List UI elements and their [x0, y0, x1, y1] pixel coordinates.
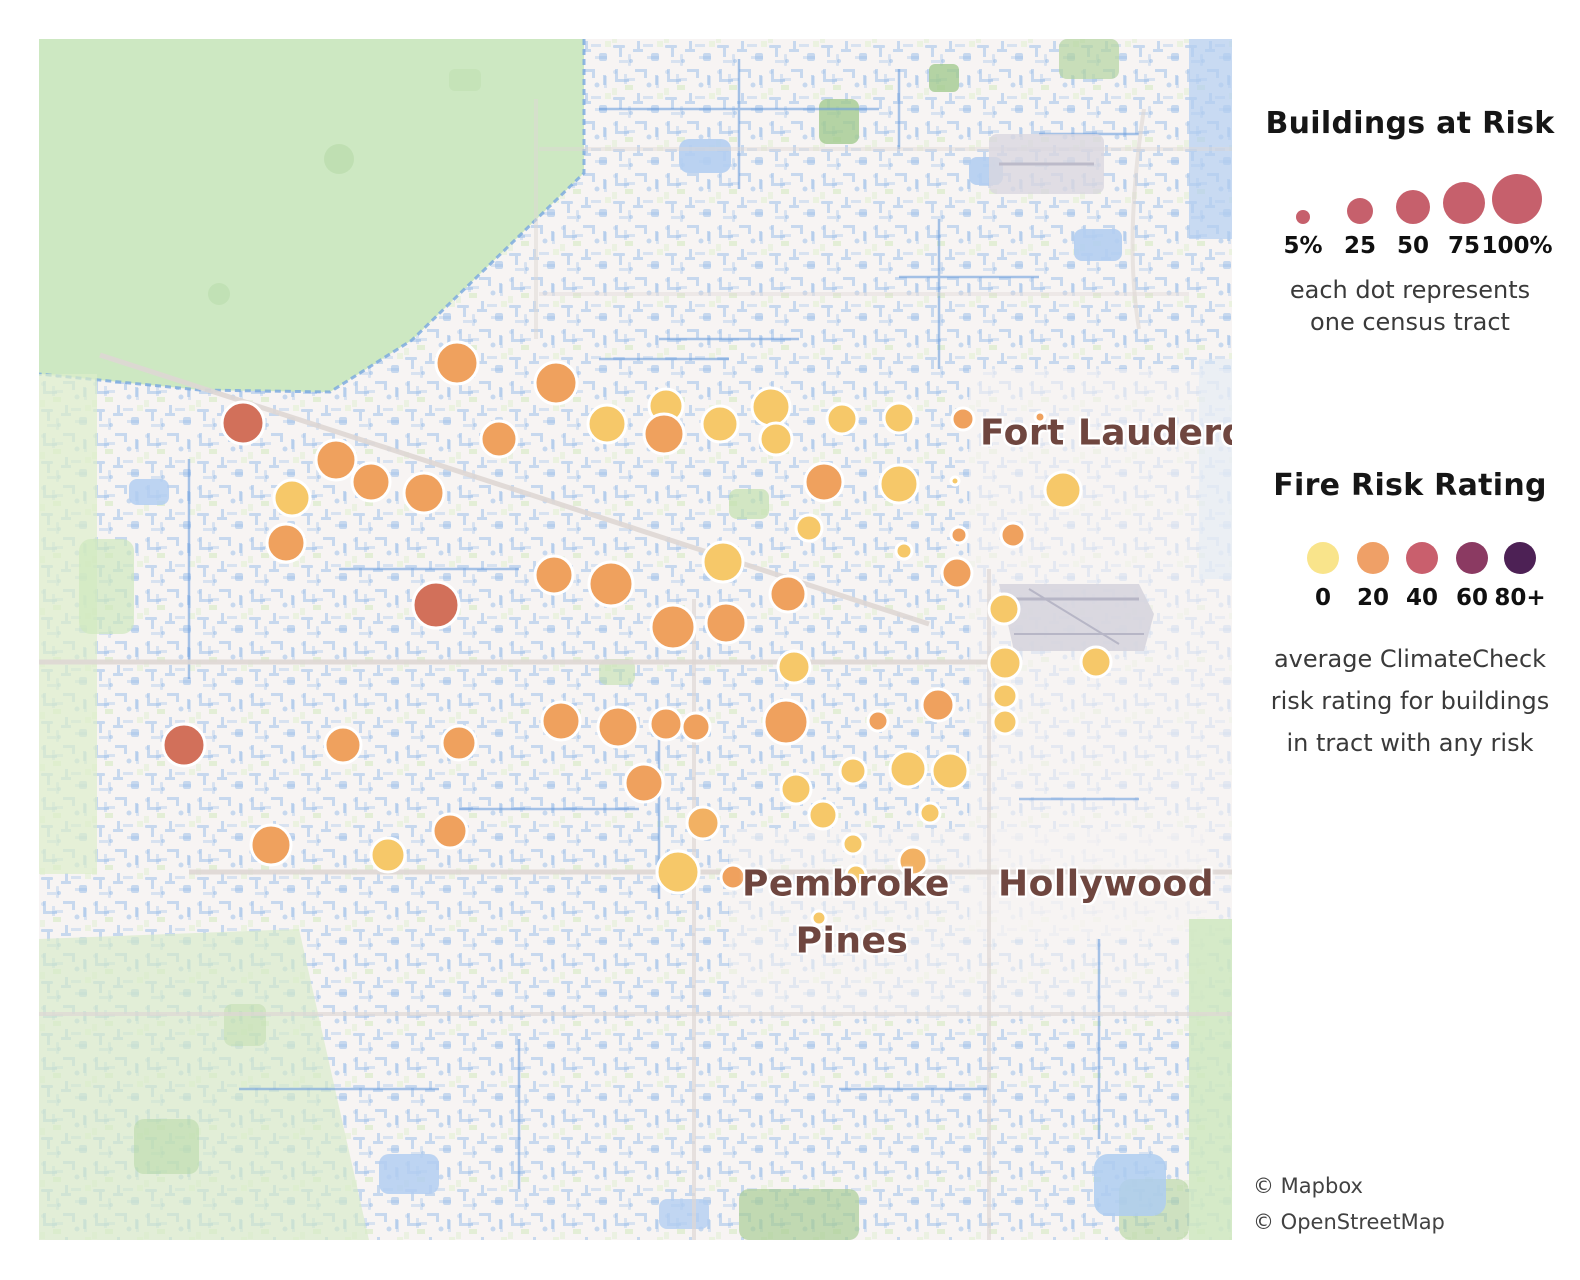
census-tract-dot	[542, 702, 580, 740]
legend-tick-label: 50	[1397, 233, 1429, 259]
fire-legend-caption: average ClimateCheck risk rating for bui…	[1240, 638, 1580, 764]
legend-tick-label: 20	[1357, 585, 1389, 611]
osm-attribution-link[interactable]: © OpenStreetMap	[1253, 1204, 1445, 1240]
legend-tick-label: 80+	[1494, 585, 1545, 611]
census-tract-dot	[442, 726, 476, 760]
census-tract-dot	[770, 576, 806, 612]
census-tract-dot	[706, 603, 746, 643]
size-legend-dot	[1347, 198, 1373, 224]
census-tract-dot	[625, 764, 663, 802]
census-tract-dot	[682, 713, 710, 741]
census-tract-dot	[222, 402, 264, 444]
census-tract-dot	[598, 707, 638, 747]
figure-canvas: Fort LauderdPembrokePinesHollywood Build…	[0, 0, 1580, 1280]
fire-legend-dots	[1255, 532, 1575, 584]
census-tract-dot	[588, 405, 626, 443]
census-tract-dot	[922, 689, 954, 721]
census-tract-dot	[805, 463, 843, 501]
census-tract-dot	[896, 543, 912, 559]
census-tract-dot	[809, 801, 837, 829]
census-tract-dot	[481, 421, 517, 457]
census-tract-dot	[433, 814, 467, 848]
census-tract-dot	[371, 838, 405, 872]
legend-tick-label: 100%	[1481, 233, 1552, 259]
fire-caption-line3: in tract with any risk	[1240, 722, 1580, 764]
census-tract-dot	[274, 480, 310, 516]
census-tract-dot	[436, 342, 478, 384]
census-tract-dot	[846, 865, 866, 885]
mapbox-attribution-link[interactable]: © Mapbox	[1253, 1168, 1445, 1204]
buildings-caption-line1: each dot represents	[1240, 274, 1580, 306]
census-tract-dot	[840, 758, 866, 784]
size-legend-dot	[1443, 182, 1485, 224]
legend-tick-label: 75	[1448, 233, 1480, 259]
fire-legend-dot	[1357, 542, 1389, 574]
census-tract-dot	[920, 803, 940, 823]
census-tract-dot	[657, 851, 699, 893]
census-tract-dot	[951, 477, 959, 485]
census-tract-dot	[702, 406, 738, 442]
map-attribution: © Mapbox © OpenStreetMap	[1253, 1168, 1445, 1240]
legend-panel: Buildings at Risk 5%255075100% each dot …	[1240, 0, 1580, 1280]
census-tract-dot	[651, 605, 695, 649]
census-tract-dot	[827, 404, 857, 434]
census-tract-dot	[325, 727, 361, 763]
size-legend-dot	[1296, 210, 1310, 224]
buildings-legend-caption: each dot represents one census tract	[1240, 274, 1580, 338]
buildings-legend-title: Buildings at Risk	[1240, 106, 1580, 141]
census-tract-dot	[316, 440, 356, 480]
census-tract-dot	[352, 463, 390, 501]
census-tract-dot	[267, 524, 305, 562]
size-legend-dot	[1492, 174, 1542, 224]
census-tract-dot	[843, 834, 863, 854]
fire-legend-dot	[1504, 542, 1536, 574]
census-tract-dot	[535, 556, 573, 594]
fire-caption-line2: risk rating for buildings	[1240, 680, 1580, 722]
legend-tick-label: 60	[1456, 585, 1488, 611]
census-tract-dot	[812, 911, 826, 925]
census-tract-dot	[1045, 472, 1081, 508]
fire-legend-ticks: 020406080+	[1240, 585, 1580, 615]
census-tract-dot	[796, 515, 822, 541]
fire-legend-dot	[1307, 542, 1339, 574]
census-tract-dot	[687, 807, 719, 839]
census-tract-dot	[880, 465, 918, 503]
legend-tick-label: 0	[1315, 585, 1331, 611]
census-tract-dot	[781, 774, 811, 804]
census-tract-dot	[413, 582, 459, 628]
census-tract-dot	[951, 527, 967, 543]
census-tract-dot	[952, 408, 974, 430]
census-tract-dot	[535, 362, 577, 404]
census-tract-dot	[932, 753, 968, 789]
fire-legend-dot	[1406, 542, 1438, 574]
census-tract-dot	[868, 711, 888, 731]
legend-tick-label: 40	[1406, 585, 1438, 611]
census-tract-dot	[1001, 523, 1025, 547]
buildings-caption-line2: one census tract	[1240, 306, 1580, 338]
fire-caption-line1: average ClimateCheck	[1240, 638, 1580, 680]
census-tract-dot	[942, 558, 972, 588]
census-tract-dot	[1035, 412, 1045, 422]
census-tract-dot	[989, 594, 1019, 624]
census-tract-dot	[760, 423, 792, 455]
census-tract-dot	[993, 710, 1017, 734]
census-tract-dot	[163, 724, 205, 766]
buildings-legend-dots	[1255, 158, 1575, 230]
legend-tick-label: 25	[1344, 233, 1376, 259]
census-tract-dot	[884, 403, 914, 433]
fire-legend-title: Fire Risk Rating	[1240, 468, 1580, 503]
census-tract-dot	[589, 562, 633, 606]
census-tract-dot	[890, 751, 926, 787]
census-tract-dot	[993, 684, 1017, 708]
census-tract-dot	[644, 414, 684, 454]
census-tract-dot	[650, 708, 682, 740]
census-tract-dot	[251, 825, 291, 865]
census-tract-dot	[989, 647, 1021, 679]
map-basemap	[39, 39, 1232, 1240]
census-tract-dot	[778, 651, 810, 683]
census-tract-dot	[703, 542, 743, 582]
buildings-legend-ticks: 5%255075100%	[1240, 233, 1580, 263]
legend-tick-label: 5%	[1283, 233, 1322, 259]
census-tract-dot	[764, 700, 808, 744]
census-tract-dot	[1081, 647, 1111, 677]
fire-legend-dot	[1456, 542, 1488, 574]
size-legend-dot	[1396, 190, 1430, 224]
census-tract-dot	[721, 865, 745, 889]
census-tract-dot	[899, 847, 927, 875]
census-tract-dot	[404, 473, 444, 513]
map: Fort LauderdPembrokePinesHollywood	[39, 39, 1232, 1240]
census-tract-dot	[752, 388, 790, 426]
